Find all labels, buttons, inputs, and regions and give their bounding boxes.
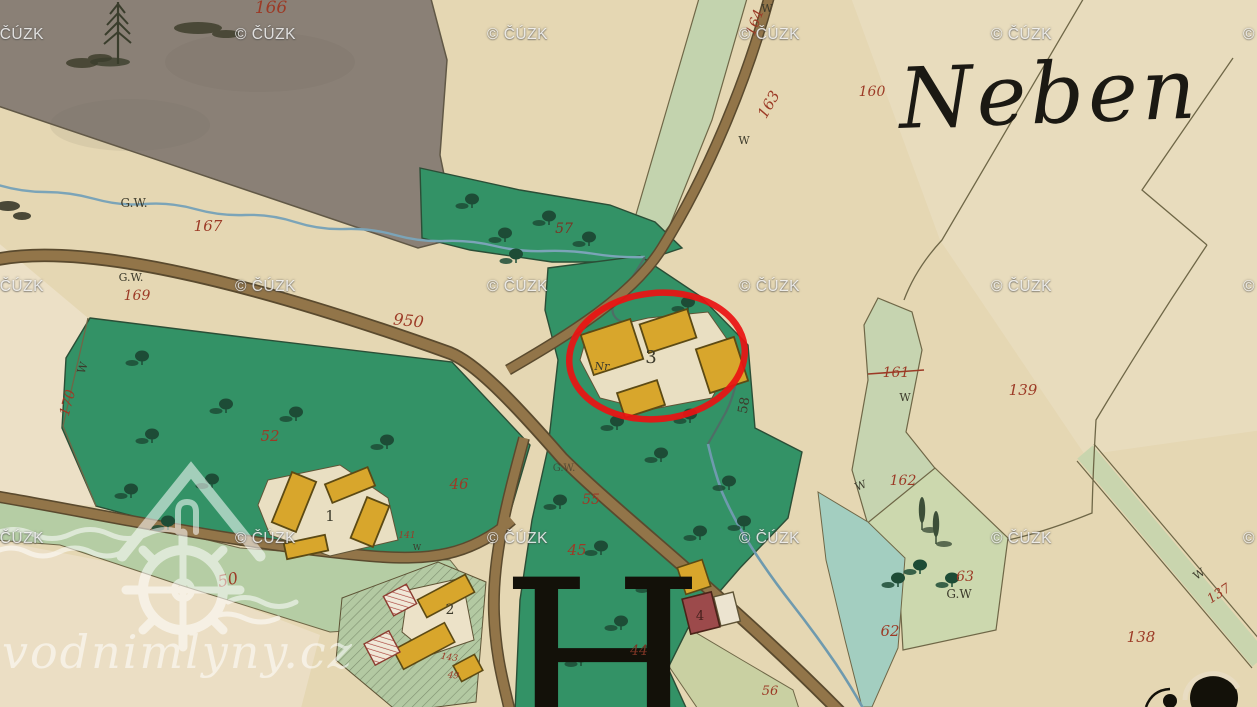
parcel-label: 2	[446, 602, 455, 618]
parcel-label: 52	[260, 427, 279, 445]
parcel-label: 46	[448, 475, 469, 493]
parcel-label: Nr	[594, 360, 611, 373]
big-letter-text: H	[500, 531, 705, 707]
parcel-label: W	[761, 2, 773, 15]
parcel-label: 161	[883, 365, 910, 381]
parcel-label: 160	[859, 84, 886, 100]
parcel-label: 49	[446, 670, 460, 682]
parcel-label: 950	[392, 309, 424, 331]
logo-text: vodnimlyny.cz	[2, 625, 354, 679]
parcel-label: 3	[645, 347, 656, 368]
parcel-label: G.W.	[119, 271, 144, 284]
map-viewport[interactable]: Neben H 16616416316016716995017052575846…	[0, 0, 1257, 707]
parcel-label: 62	[880, 622, 899, 640]
parcel-label: 139	[1009, 381, 1038, 399]
parcel-label: 58	[736, 396, 754, 415]
parcel-label: W	[413, 543, 422, 552]
parcel-label: 141	[398, 531, 415, 541]
parcel-label: 162	[890, 473, 917, 489]
parcel-label: G.W.	[120, 196, 147, 210]
parcel-label: W	[899, 391, 911, 404]
parcel-label: 1	[325, 507, 335, 525]
parcel-label: 56	[762, 684, 779, 699]
parcel-label: 45	[566, 541, 586, 559]
parcel-label: 57	[555, 221, 573, 237]
parcel-label: 166	[255, 0, 288, 18]
parcel-label: 138	[1127, 628, 1156, 646]
parcel-label: 167	[194, 217, 223, 235]
parcel-label: 55	[582, 492, 600, 508]
parcel-label: W	[738, 134, 750, 147]
parcel-label: 4	[696, 609, 704, 624]
parcel-label: G.W.	[553, 463, 576, 474]
place-name-text: Neben	[895, 40, 1201, 149]
map-canvas: Neben H 16616416316016716995017052575846…	[0, 0, 1257, 707]
parcel-label: 44	[629, 643, 648, 659]
parcel-label: 169	[124, 288, 151, 304]
parcel-label: G.W	[946, 587, 972, 601]
parcel-label: 63	[956, 569, 974, 585]
